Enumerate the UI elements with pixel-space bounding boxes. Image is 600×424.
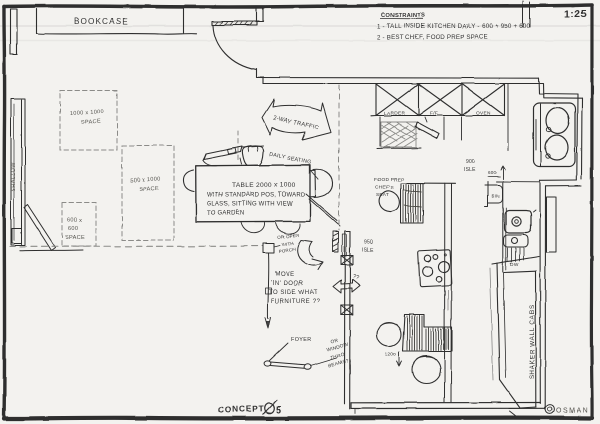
svg-text:600: 600 bbox=[68, 226, 78, 232]
svg-text:FURNITURE ??: FURNITURE ?? bbox=[271, 299, 320, 305]
svg-text:BOOKCASE: BOOKCASE bbox=[74, 17, 129, 26]
svg-text:OVEN: OVEN bbox=[476, 111, 491, 117]
svg-text:WITH STANDARD POS, TOWARD: WITH STANDARD POS, TOWARD bbox=[207, 193, 306, 199]
svg-text:900: 900 bbox=[466, 159, 475, 165]
svg-text:MOVE: MOVE bbox=[275, 272, 295, 278]
svg-text:SPACE: SPACE bbox=[65, 235, 85, 241]
svg-text:FOOD PREP: FOOD PREP bbox=[374, 177, 404, 183]
svg-text:CONSTRAINTS: CONSTRAINTS bbox=[381, 13, 425, 19]
svg-text:950: 950 bbox=[364, 240, 373, 246]
svg-text:600 x: 600 x bbox=[67, 218, 82, 224]
svg-text:TABLE 2000 x 1000: TABLE 2000 x 1000 bbox=[232, 182, 296, 189]
svg-text:SPACE: SPACE bbox=[139, 186, 159, 193]
svg-text:ISLE: ISLE bbox=[464, 167, 476, 173]
svg-text:LARDER: LARDER bbox=[384, 111, 405, 117]
svg-text:DW: DW bbox=[510, 262, 519, 268]
svg-text:ISLE: ISLE bbox=[362, 248, 374, 254]
svg-text:1:25: 1:25 bbox=[564, 8, 587, 20]
svg-text:TO GARDEN: TO GARDEN bbox=[207, 211, 244, 217]
svg-text:F/F: F/F bbox=[430, 111, 438, 117]
svg-text:5: 5 bbox=[276, 405, 282, 416]
svg-text:BIN: BIN bbox=[491, 194, 500, 200]
svg-text:SPACE: SPACE bbox=[81, 119, 101, 126]
svg-text:FOYER: FOYER bbox=[291, 337, 312, 343]
svg-text:CHEF'S: CHEF'S bbox=[375, 185, 393, 191]
svg-text:TO SIDE WHAT: TO SIDE WHAT bbox=[269, 290, 318, 296]
svg-text:SHALLOW: SHALLOW bbox=[11, 161, 17, 192]
svg-text:2 - BEST CHEF, FOOD PREP SPACE: 2 - BEST CHEF, FOOD PREP SPACE bbox=[377, 34, 488, 41]
svg-text:OSMAN: OSMAN bbox=[556, 408, 589, 415]
svg-text:SHAKER WALL CABS: SHAKER WALL CABS bbox=[529, 304, 536, 379]
svg-text:1 - TALL INSIDE KITCHEN DAILY: 1 - TALL INSIDE KITCHEN DAILY - 600 + 95… bbox=[377, 23, 531, 30]
svg-text:GLASS, SITTING WITH VIEW: GLASS, SITTING WITH VIEW bbox=[207, 202, 293, 208]
svg-text:'IN' DOOR: 'IN' DOOR bbox=[271, 281, 304, 287]
svg-text:600: 600 bbox=[488, 170, 497, 175]
svg-text:CONCEPT: CONCEPT bbox=[218, 403, 265, 414]
svg-text:1200: 1200 bbox=[385, 352, 397, 358]
